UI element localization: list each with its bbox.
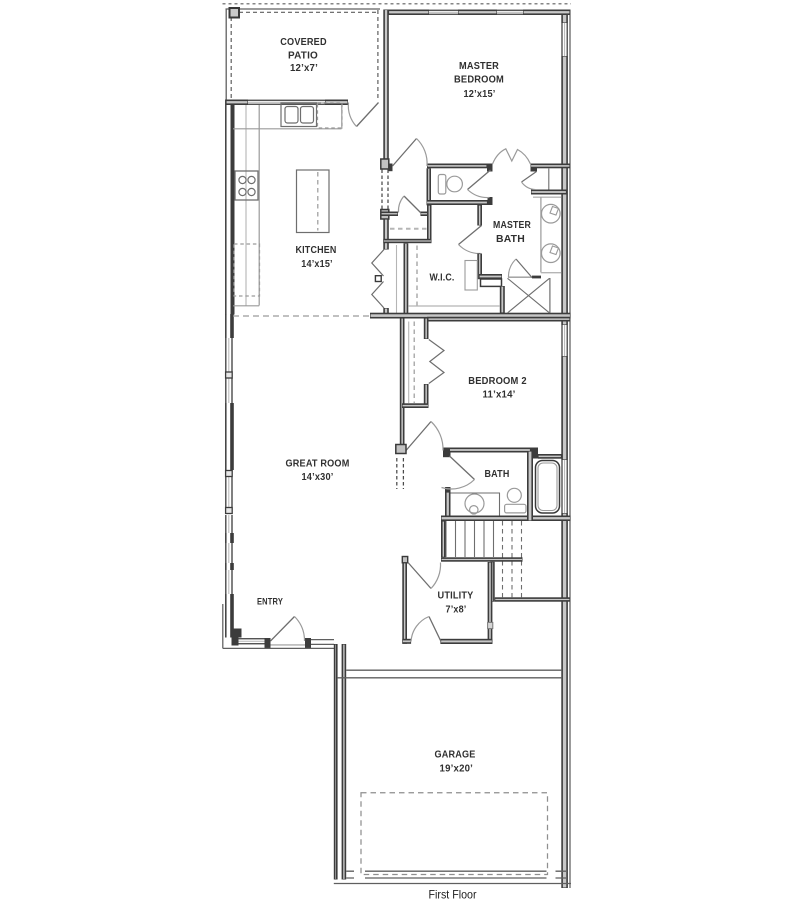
svg-text:14’x30’: 14’x30’	[302, 472, 334, 483]
svg-text:COVERED: COVERED	[280, 37, 327, 48]
svg-text:W.I.C.: W.I.C.	[430, 273, 455, 284]
svg-text:7’x8’: 7’x8’	[446, 605, 467, 616]
svg-text:19’x20’: 19’x20’	[440, 764, 474, 775]
svg-text:BATH: BATH	[496, 234, 525, 245]
svg-text:14’x15’: 14’x15’	[301, 259, 333, 270]
svg-text:BEDROOM 2: BEDROOM 2	[468, 376, 527, 387]
svg-text:PATIO: PATIO	[288, 51, 318, 62]
svg-text:ENTRY: ENTRY	[257, 597, 283, 607]
svg-text:BEDROOM: BEDROOM	[454, 75, 504, 86]
svg-text:MASTER: MASTER	[459, 61, 499, 72]
svg-text:MASTER: MASTER	[493, 220, 531, 231]
svg-text:First Floor: First Floor	[429, 887, 477, 900]
svg-text:UTILITY: UTILITY	[438, 591, 474, 602]
svg-text:12’x15’: 12’x15’	[464, 89, 496, 100]
svg-text:GARAGE: GARAGE	[435, 750, 476, 761]
svg-text:12’x7’: 12’x7’	[290, 63, 318, 74]
svg-text:GREAT ROOM: GREAT ROOM	[286, 459, 350, 470]
svg-text:KITCHEN: KITCHEN	[296, 245, 337, 256]
svg-text:11’x14’: 11’x14’	[483, 390, 516, 401]
svg-text:BATH: BATH	[485, 469, 510, 480]
